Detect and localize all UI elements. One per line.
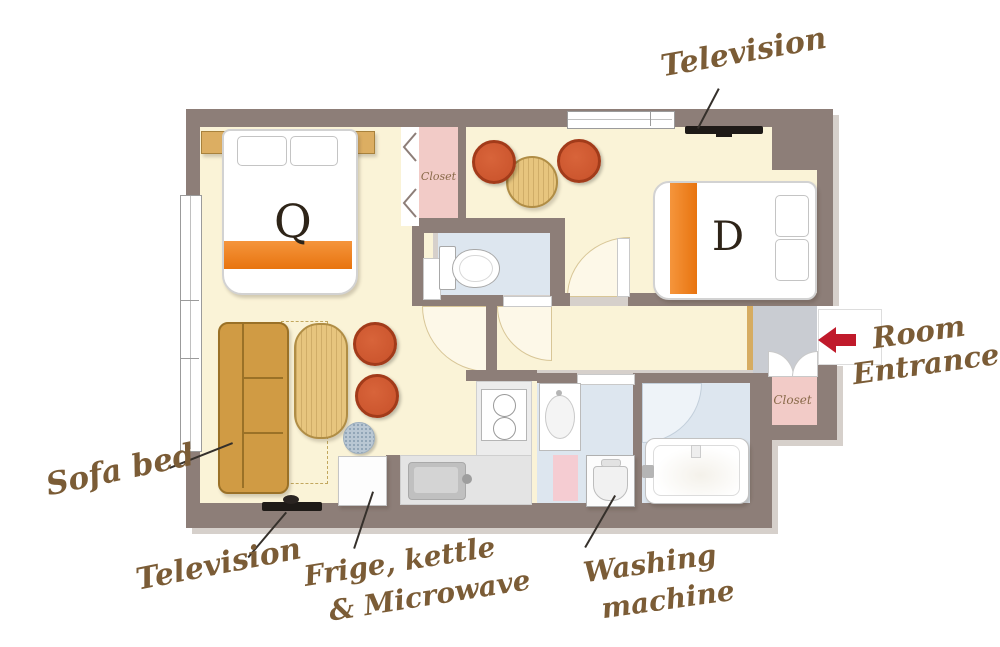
chair [355,374,399,418]
fridge [338,456,387,506]
wall [537,373,577,383]
pillow [775,239,809,281]
sofa-backrest [242,324,244,488]
oval-table [294,323,348,439]
entrance-step [747,306,753,370]
stove [481,389,527,441]
floor-plan: Q D [0,0,1000,647]
wall [772,109,833,170]
wall [412,218,565,233]
wall [466,370,537,381]
entrance-arrow-icon [818,327,856,353]
burner [493,417,516,440]
wall [633,373,750,383]
window [567,111,675,129]
folding-door [401,127,419,226]
chair [472,140,516,184]
label-television-top: Television [659,24,829,83]
sofa-cushion-line [244,377,283,379]
chair [557,139,601,183]
pillow [290,136,338,166]
bed-accent-stripe [670,183,697,294]
stool [343,422,375,454]
bathtub [645,438,749,504]
tv-stand [716,133,732,137]
toilet-bowl [452,249,500,288]
sofa-bed [218,322,289,494]
closet-entrance-label: Closet [768,394,817,406]
label-sofa-bed: Sofa bed [43,440,197,502]
label-television-bottom: Television [134,534,304,595]
closet-top-label: Closet [419,171,458,182]
door-leaf [577,374,635,385]
wall [486,306,497,370]
pillow [237,136,287,166]
chair [353,322,397,366]
queen-bed-label: Q [274,198,312,244]
door-leaf [503,296,552,307]
sink [408,462,466,500]
bath-faucet [642,465,654,478]
window [180,195,202,452]
door-leaf [617,238,630,297]
tv-stand [283,495,299,504]
burner [493,394,516,417]
wall [386,455,400,505]
sofa-cushion-line [244,432,283,434]
wall [817,170,833,306]
bath-mat [553,455,578,501]
wall [550,293,570,306]
pillow [775,195,809,237]
double-bed-label: D [712,217,744,257]
washbasin [539,383,581,451]
faucet [462,474,472,484]
wall [186,109,833,127]
